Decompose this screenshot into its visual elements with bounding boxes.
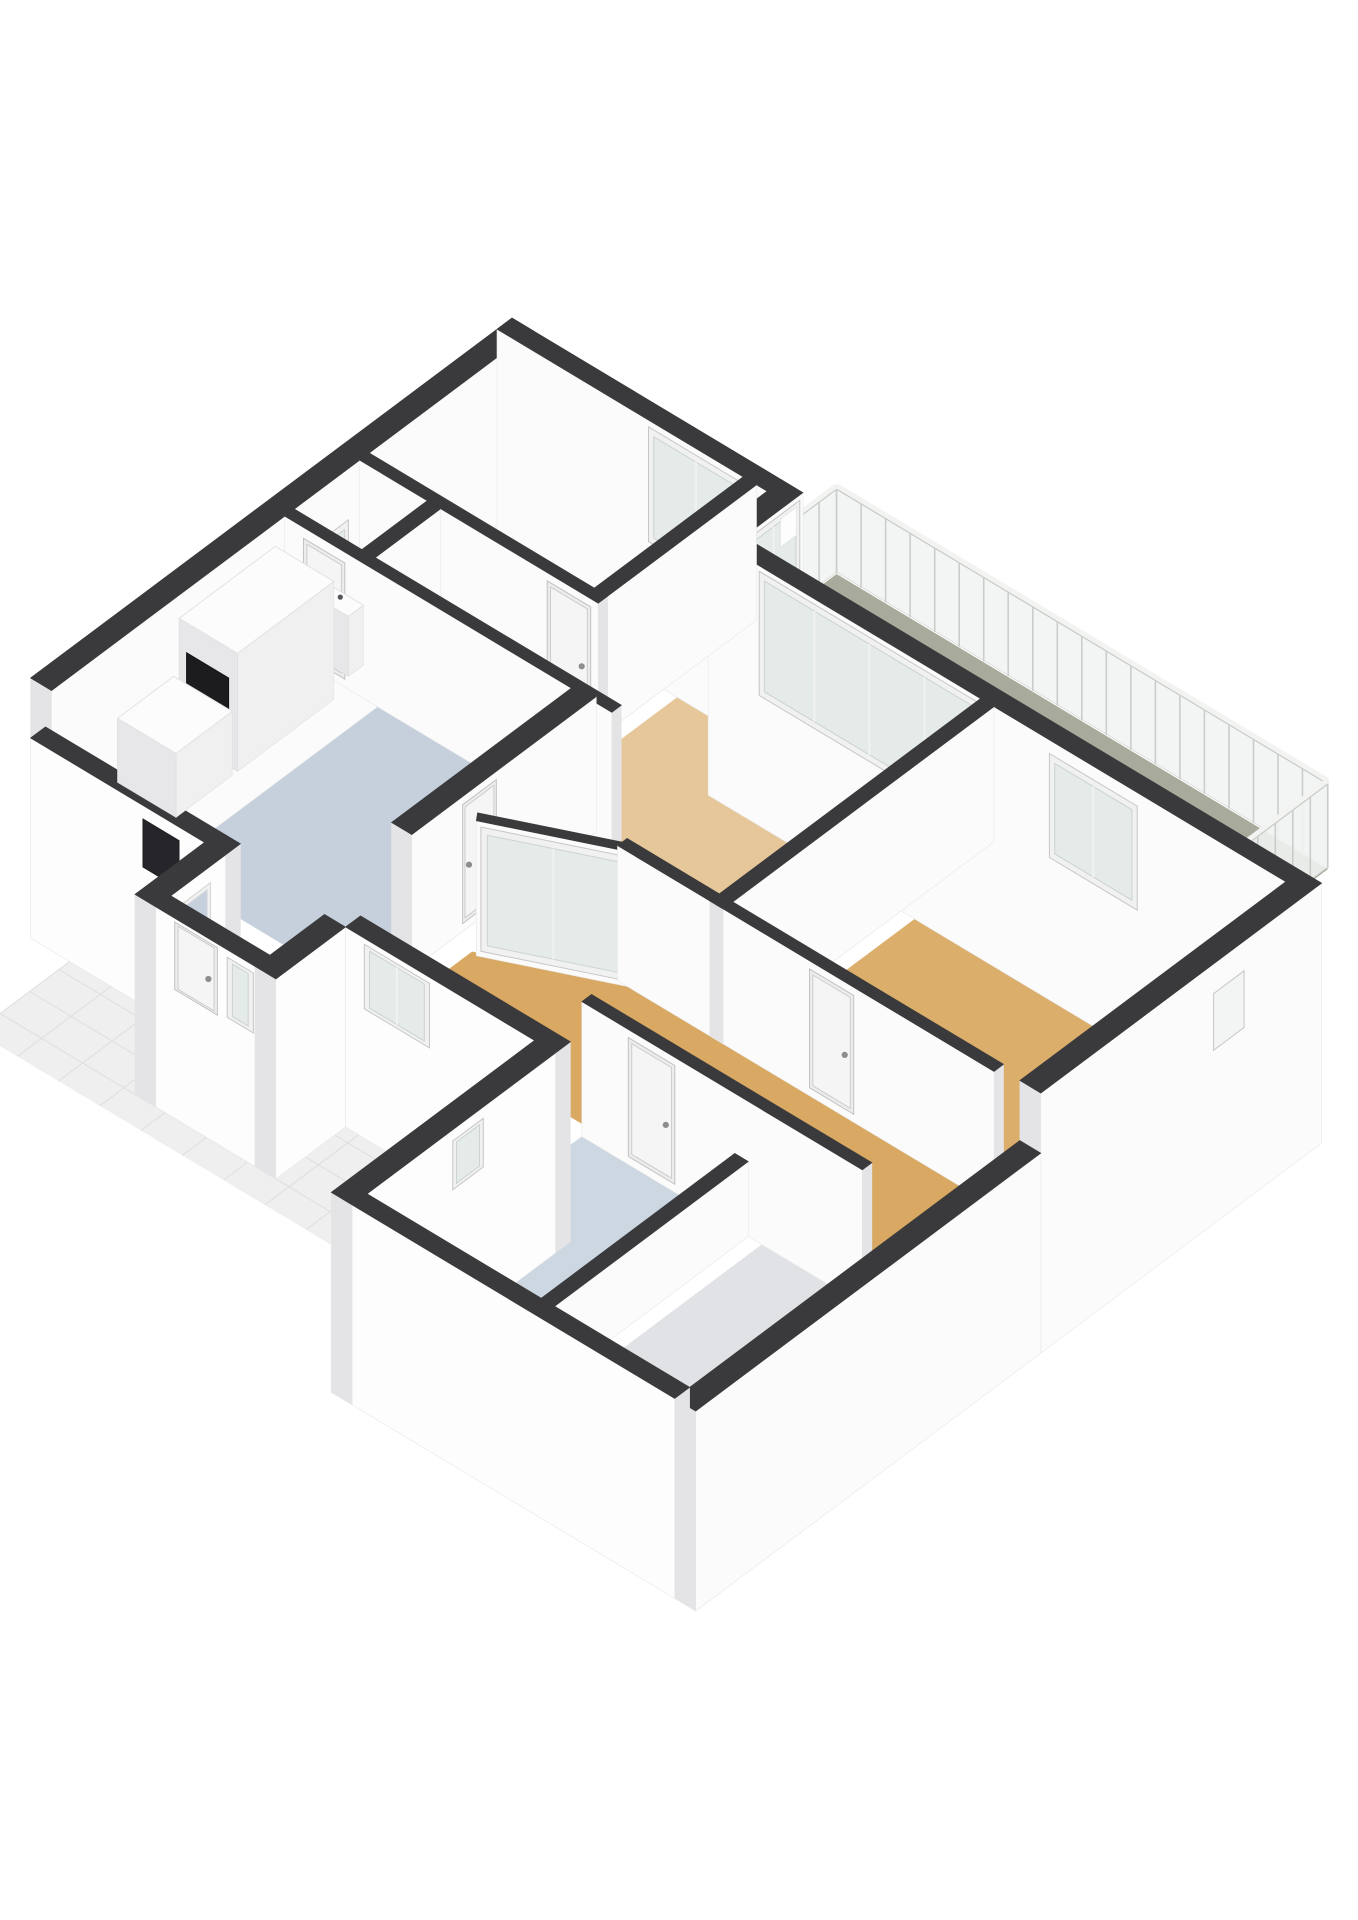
wall-wing-nw-end	[331, 1192, 352, 1405]
wall-bedroom2-south-door-leaf	[813, 975, 851, 1108]
floorplan-svg	[0, 0, 1358, 1920]
wall-bedroom2-south-door-handle	[842, 1052, 848, 1058]
wall-sw-facade-mid-end	[556, 1042, 571, 1253]
wall-kitchen-living-door-handle	[466, 862, 472, 868]
wall-bedroom2-west-end	[710, 901, 724, 1044]
wall-vestibule-south-door-handle	[205, 976, 211, 982]
wall-wing-north-door-handle	[663, 1122, 669, 1128]
wall-vestibule-west-end	[135, 894, 156, 1107]
wall-bedroom1-south-door-handle	[579, 663, 585, 669]
wall-wing-south-end	[675, 1387, 690, 1598]
wall-kitchen-north-end	[612, 705, 622, 847]
floorplan-3d-view	[0, 0, 1358, 1920]
wall-vestibule-south-glass-pane	[232, 964, 248, 1026]
wall-vestibule-east-end	[255, 966, 276, 1179]
closet-sink-tap	[338, 595, 343, 600]
closet-sink-side-a	[348, 605, 363, 676]
wall-wing-north-door-leaf	[632, 1044, 672, 1179]
